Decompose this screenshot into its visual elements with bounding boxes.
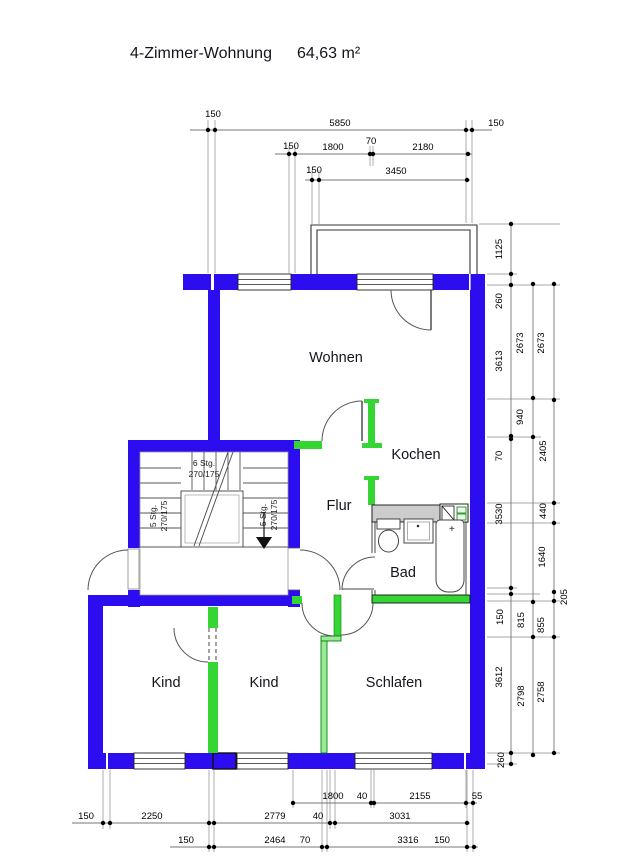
page-title-area: 64,63 m² xyxy=(297,45,361,62)
dim-bottom: 2250 xyxy=(141,811,162,822)
dim-labels-bottom: 1800 40 2155 55 150 2250 2779 40 3031 15… xyxy=(78,791,482,846)
dim-right: 855 xyxy=(536,617,547,633)
dim-right: 940 xyxy=(515,409,526,425)
dim-bottom: 40 xyxy=(357,791,368,802)
dim-top: 1800 xyxy=(322,142,343,153)
dim-right: 3530 xyxy=(494,503,505,524)
room-label-bad: Bad xyxy=(390,565,416,581)
room-label-kochen: Kochen xyxy=(391,447,440,463)
dim-right: 260 xyxy=(494,293,505,309)
room-label-wohnen: Wohnen xyxy=(309,350,363,366)
door-balcony xyxy=(391,290,431,330)
dim-right: 440 xyxy=(538,503,549,519)
dim-top: 150 xyxy=(306,165,322,176)
shaft-symbol-icon xyxy=(440,504,468,522)
room-label-kind1: Kind xyxy=(151,675,180,691)
kind2-schlafen-wall xyxy=(321,641,327,753)
door-bad xyxy=(342,557,375,590)
window-kind2 xyxy=(237,753,288,769)
dim-bottom: 3031 xyxy=(389,811,410,822)
door-divider xyxy=(334,595,341,638)
stair-label-right-1: 5 Stg. xyxy=(258,504,268,526)
dim-right: 1640 xyxy=(537,546,548,567)
stair-label-right-2: 270/175 xyxy=(269,499,279,530)
floor-plan-page: + 4-Zimmer-Wohnung 64,63 m² Wohnen Koche… xyxy=(0,0,628,867)
door-wohnen-flur xyxy=(322,401,362,441)
door-kind2 xyxy=(302,603,335,636)
stair-label-left-2: 270/175 xyxy=(159,500,169,531)
window-top-2 xyxy=(357,274,433,290)
window-kind1 xyxy=(134,753,185,769)
dim-top: 150 xyxy=(488,118,504,129)
dim-top: 150 xyxy=(283,141,299,152)
dim-right: 1125 xyxy=(494,239,505,259)
dim-top: 2180 xyxy=(412,142,433,153)
floor-plan: + 4-Zimmer-Wohnung 64,63 m² Wohnen Koche… xyxy=(0,0,628,867)
dim-labels-right: 1125 260 3613 70 3530 150 3612 260 2673 … xyxy=(494,239,570,768)
dim-bottom: 150 xyxy=(434,835,450,846)
balcony xyxy=(311,225,477,274)
stair-core xyxy=(181,491,243,547)
wall-pier xyxy=(213,753,236,769)
dim-top: 150 xyxy=(205,109,221,120)
dim-labels-top: 150 5850 150 150 1800 70 2180 150 3450 xyxy=(205,109,504,177)
dim-right: 2673 xyxy=(515,332,526,353)
dim-right: 260 xyxy=(496,752,507,768)
dim-bottom: 55 xyxy=(472,791,483,802)
bathtub-icon: + xyxy=(436,520,464,592)
dim-top: 5850 xyxy=(329,118,350,129)
dim-top: 70 xyxy=(366,136,377,147)
bathroom: + xyxy=(372,504,468,595)
dim-bottom: 150 xyxy=(78,811,94,822)
dim-bottom: 2779 xyxy=(264,811,285,822)
room-label-schlafen: Schlafen xyxy=(366,675,422,691)
dim-right: 150 xyxy=(495,609,506,625)
dim-right: 205 xyxy=(559,589,570,605)
dim-bottom: 70 xyxy=(300,835,311,846)
stair-label-left-1: 5 Stg. xyxy=(148,505,158,527)
dim-right: 2405 xyxy=(538,440,549,461)
window-schlafen xyxy=(355,753,432,769)
room-label-flur: Flur xyxy=(327,498,352,514)
dim-right: 2758 xyxy=(536,681,547,702)
dim-right: 2798 xyxy=(516,685,527,706)
toilet-icon xyxy=(377,519,400,552)
dim-top: 3450 xyxy=(385,166,406,177)
thin-wall-jog xyxy=(321,636,341,641)
dim-bottom: 150 xyxy=(178,835,194,846)
dim-bottom: 1800 xyxy=(322,791,343,802)
dim-bottom: 3316 xyxy=(397,835,418,846)
dim-right: 3612 xyxy=(494,666,505,687)
dim-bottom: 40 xyxy=(313,811,324,822)
door-kind1 xyxy=(174,628,216,662)
dim-right: 2673 xyxy=(536,332,547,353)
stair-label-top-2: 270/175 xyxy=(189,469,220,479)
door-building-entry xyxy=(88,549,139,590)
dim-right: 70 xyxy=(494,451,505,462)
washbasin-icon xyxy=(404,519,433,543)
dim-bottom: 2155 xyxy=(409,791,430,802)
door-apartment-entry xyxy=(288,548,340,590)
tub-faucet-mark: + xyxy=(449,524,455,535)
dim-bottom: 2464 xyxy=(264,835,285,846)
page-title: 4-Zimmer-Wohnung xyxy=(130,45,272,62)
stair-label-top-1: 6 Stg. xyxy=(193,458,215,468)
bad-south-wall xyxy=(372,595,470,603)
dim-right: 815 xyxy=(516,612,527,628)
dim-right: 3613 xyxy=(494,350,505,371)
door-schlafen xyxy=(341,603,373,635)
room-label-kind2: Kind xyxy=(249,675,278,691)
dimension-dots xyxy=(101,128,556,849)
window-top-1 xyxy=(238,274,291,290)
